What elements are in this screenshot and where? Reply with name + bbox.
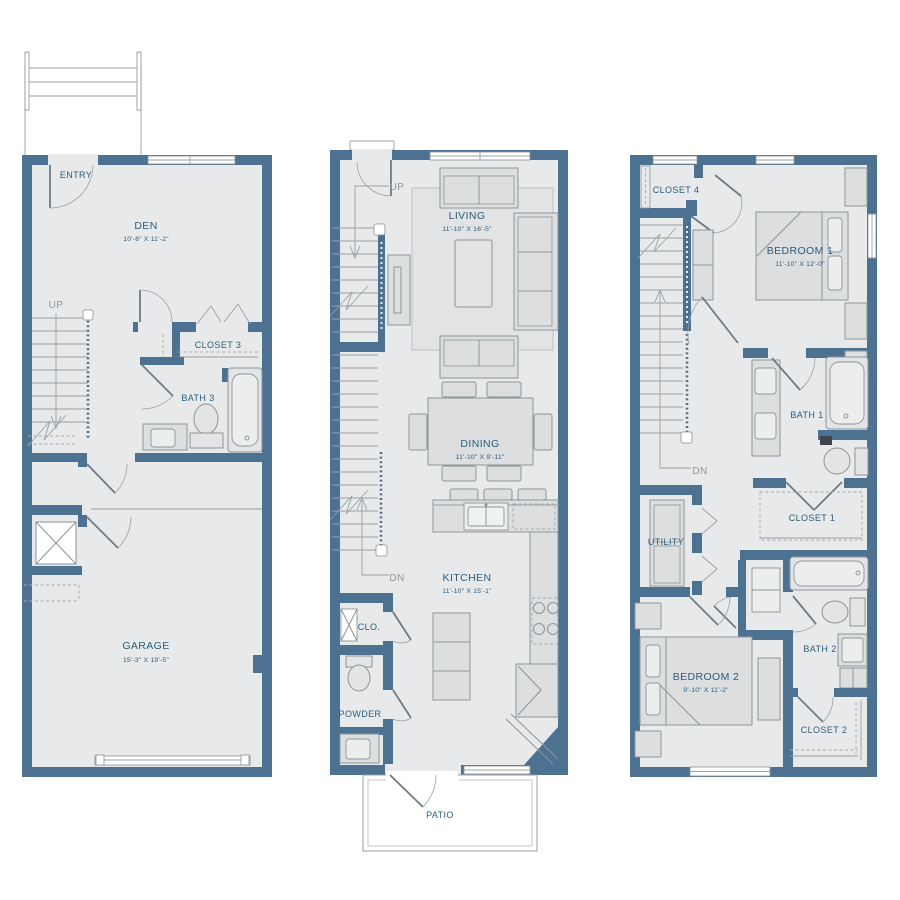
living-window (430, 152, 530, 160)
garage-dims: 15'-3" X 19'-5" (123, 657, 169, 664)
toilet (824, 448, 868, 475)
up-label: UP (49, 300, 64, 311)
entry-label: ENTRY (60, 170, 92, 180)
powder-label: POWDER (339, 709, 382, 719)
kitchen-window (464, 766, 530, 774)
closet3-label: CLOSET 3 (195, 340, 242, 350)
living-label: LIVING (449, 210, 486, 222)
bedroom2-dims: 9'-10" X 11'-2" (683, 687, 729, 694)
bedroom2-window (690, 767, 770, 776)
den-dims: 10'-6" X 11'-2" (123, 236, 169, 243)
dining-dims: 11'-10" X 9'-11" (456, 454, 505, 461)
kitchen-label: KITCHEN (443, 572, 492, 584)
up-label: UP (390, 182, 405, 193)
bedroom2-label: BEDROOM 2 (673, 671, 740, 683)
garage-door (95, 755, 250, 765)
garage-label: GARAGE (122, 640, 169, 652)
powder-sink (340, 734, 379, 763)
utility-label: UTILITY (648, 537, 684, 547)
bedroom1-label: BEDROOM 1 (767, 245, 834, 257)
closet1-label: CLOSET 1 (789, 513, 836, 523)
floor-2-plan: UP LIVING 11'-10" X 16'-5" DINING 11'-10… (330, 141, 568, 851)
den-label: DEN (134, 220, 157, 232)
shower (838, 634, 867, 666)
floor-1-plan: ENTRY DEN 10'-6" X 11'-2" UP CLOSET 3 BA… (22, 52, 272, 777)
floor-3-plan: CLOSET 4 BEDROOM 1 11'-10" X 12'-0" BATH… (630, 155, 877, 777)
living-furniture (388, 168, 558, 378)
bathtub (790, 557, 868, 590)
bathtub (228, 368, 262, 452)
dn-label: DN (389, 573, 404, 584)
entry-stoop (25, 52, 141, 160)
closet2-label: CLOSET 2 (801, 725, 848, 735)
powder-toilet (346, 656, 372, 691)
bath2-label: BATH 2 (803, 644, 836, 654)
floorplan-image: ENTRY DEN 10'-6" X 11'-2" UP CLOSET 3 BA… (0, 0, 900, 900)
bathtub (826, 357, 868, 429)
bedroom1-dims: 11'-10" X 12'-0" (775, 261, 825, 268)
clo-label: CLO. (358, 622, 381, 632)
bath1-label: BATH 1 (790, 410, 823, 420)
dn-label: DN (692, 466, 707, 477)
closet4-label: CLOSET 4 (653, 185, 700, 195)
dining-label: DINING (460, 438, 499, 450)
bath3-label: BATH 3 (181, 393, 214, 403)
patio-label: PATIO (426, 810, 454, 820)
living-dims: 11'-10" X 16'-5" (442, 226, 492, 233)
den-window (148, 156, 235, 164)
kitchen-dims: 11'-10" X 15'-1" (442, 588, 492, 595)
vanity-sink (143, 424, 187, 450)
